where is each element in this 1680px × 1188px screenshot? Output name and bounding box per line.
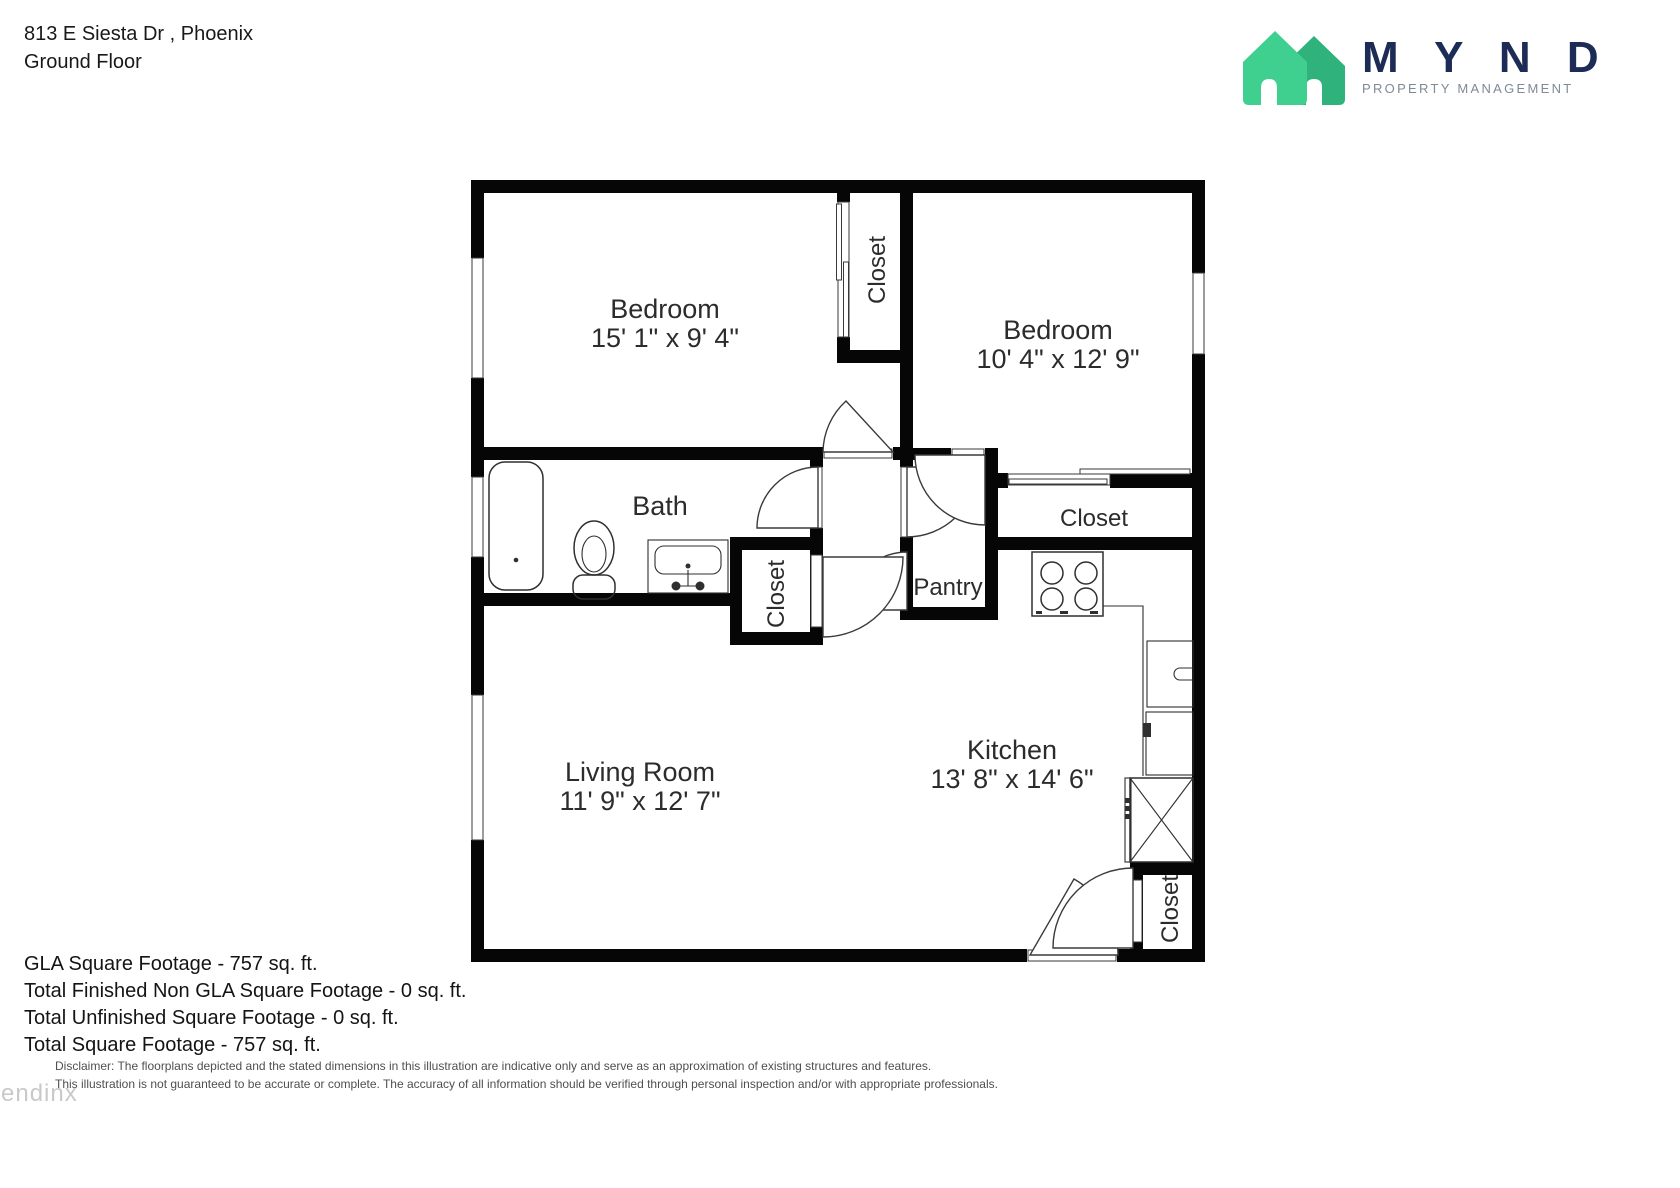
- label-bedroom1-name: Bedroom: [610, 294, 720, 324]
- disclaimer-line1: Disclaimer: The floorplans depicted and …: [55, 1057, 998, 1075]
- burner: [1041, 562, 1063, 584]
- window-living: [472, 695, 483, 840]
- label-closet-hall: Closet: [763, 560, 790, 628]
- bathtub-drain: [514, 558, 519, 563]
- disclaimer: Disclaimer: The floorplans depicted and …: [55, 1057, 998, 1093]
- bath-fixtures: [489, 462, 728, 599]
- label-kitchen-name: Kitchen: [967, 735, 1057, 765]
- footage-summary: GLA Square Footage - 757 sq. ft. Total F…: [24, 951, 466, 1059]
- label-closet-entry: Closet: [1157, 875, 1184, 943]
- label-living-name: Living Room: [565, 757, 715, 787]
- non-gla-footage: Total Finished Non GLA Square Footage - …: [24, 978, 466, 1005]
- label-bedroom1-dims: 15' 1" x 9' 4": [591, 323, 739, 353]
- burner: [1075, 588, 1097, 610]
- disclaimer-line2: This illustration is not guaranteed to b…: [55, 1075, 998, 1093]
- toilet-bowl: [574, 521, 614, 575]
- label-bedroom2-name: Bedroom: [1003, 315, 1113, 345]
- kitchen-sink: [1147, 641, 1193, 707]
- gla-footage: GLA Square Footage - 757 sq. ft.: [24, 951, 466, 978]
- kitchen-faucet: [1174, 668, 1193, 680]
- label-closet-bedrooms: Closet: [864, 236, 891, 304]
- label-pantry: Pantry: [913, 574, 982, 601]
- door-gap-closet-hall: [811, 555, 822, 627]
- window-bedroom1: [472, 258, 483, 378]
- unfinished-footage: Total Unfinished Square Footage - 0 sq. …: [24, 1005, 466, 1032]
- bath-sink-basin: [655, 546, 721, 574]
- label-living-dims: 11' 9" x 12' 7": [559, 786, 720, 816]
- burner: [1041, 588, 1063, 610]
- stove: [1032, 552, 1103, 616]
- bathtub: [489, 462, 543, 590]
- watermark: rendinx: [0, 1080, 78, 1108]
- total-footage: Total Square Footage - 757 sq. ft.: [24, 1032, 466, 1059]
- label-closet-bedroom2: Closet: [1060, 505, 1128, 532]
- counter-edge: [1103, 606, 1143, 776]
- window-bedroom2: [1193, 273, 1204, 354]
- label-bedroom2-dims: 10' 4" x 12' 9": [976, 344, 1139, 374]
- floorplan-page: 813 E Siesta Dr , Phoenix Ground Floor M…: [0, 0, 1680, 1188]
- door-bath: [757, 467, 818, 528]
- door-closet-entry: [1053, 868, 1133, 948]
- burner: [1075, 562, 1097, 584]
- label-bath: Bath: [632, 491, 688, 521]
- door-hall-living: [823, 557, 903, 637]
- faucet-handle-right: [696, 582, 705, 591]
- door-bedroom1: [823, 401, 893, 452]
- dishwasher: [1146, 712, 1193, 775]
- label-kitchen-dims: 13' 8" x 14' 6": [930, 764, 1093, 794]
- kitchen-fixtures: [1032, 552, 1193, 862]
- faucet-handle-left: [672, 582, 681, 591]
- window-bath: [472, 477, 483, 557]
